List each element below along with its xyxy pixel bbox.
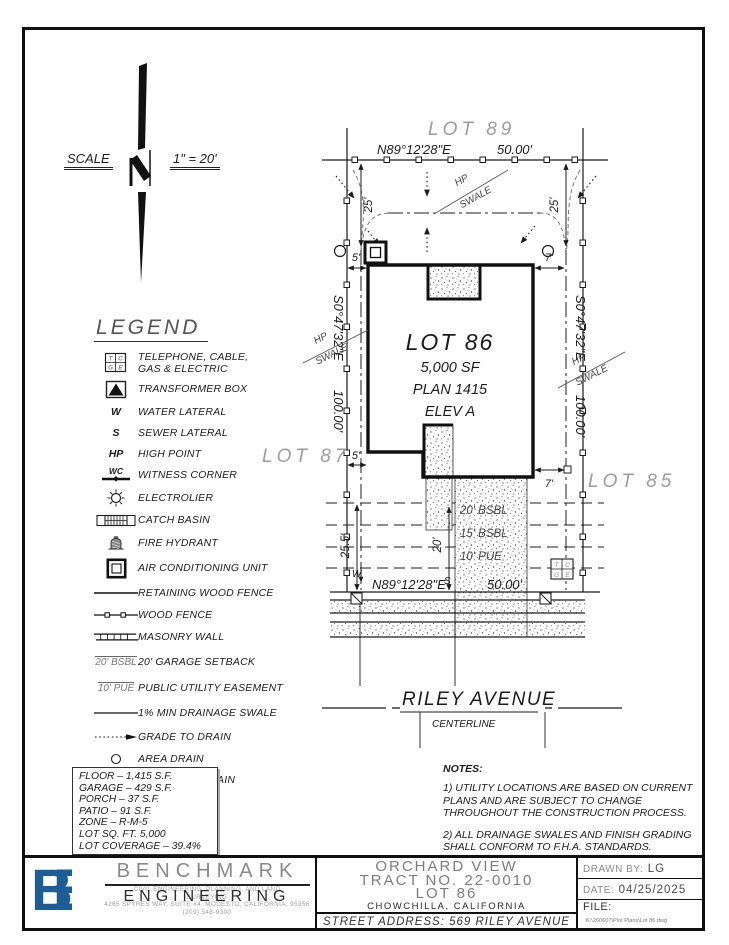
dim-side-left-bottom: 5' (352, 450, 361, 462)
hp-label: HP (312, 331, 330, 347)
bubble-up-drain-icon (351, 593, 362, 604)
hp-label: HP (453, 172, 471, 189)
note-item: 1) UTILITY LOCATIONS ARE BASED ON CURREN… (443, 782, 705, 820)
legend-title: LEGEND (94, 316, 208, 342)
svg-text:WC: WC (109, 466, 124, 476)
setback-label-20: 20' BSBL (459, 505, 508, 517)
legend-item: WOOD FENCE (94, 605, 302, 625)
area-drain-icon (94, 753, 138, 765)
company-logo: BE (31, 863, 97, 919)
pue-easement-icon: 10' PUE (94, 682, 138, 694)
legend-item: RETAINING WOOD FENCE (94, 582, 302, 604)
legend-item: FIRE HYDRANT (94, 531, 302, 554)
project-city: CHOWCHILLA, CALIFORNIA (317, 901, 576, 912)
legend-item-label: WITNESS CORNER (138, 469, 237, 481)
lot-elev-label: ELEV A (425, 404, 475, 420)
drawn-by-value: LG (648, 863, 665, 875)
street-address: STREET ADDRESS: 569 RILEY AVENUE (317, 912, 576, 929)
file-path: K:\260607\Plot Plans\Lot 86.dwg (583, 913, 702, 924)
legend-item: AREA DRAIN (94, 749, 302, 769)
stat-row: PATIO – 91 S.F. (79, 806, 213, 818)
stat-row: PORCH – 37 S.F. (79, 794, 213, 806)
water-lateral-icon: W (94, 406, 138, 418)
stat-row: ZONE – R-M-5 (79, 817, 213, 829)
rear-distance-label: 50.00' (497, 142, 533, 157)
svg-text:C: C (118, 356, 123, 363)
stat-row: LOT COVERAGE – 39.4% (79, 841, 213, 853)
company-name-overlay: ENGINEERING (101, 888, 313, 906)
stat-row: LOT SQ. FT. 5,000 (79, 829, 213, 841)
legend-item-label: 20' GARAGE SETBACK (138, 656, 255, 668)
legend-item: ELECTROLIER (94, 486, 302, 509)
drainage-swale-icon (94, 710, 138, 716)
date-value: 04/25/2025 (619, 884, 687, 896)
bsbl-setback-icon: 20' BSBL (94, 656, 138, 668)
legend-item-label: AIR CONDITIONING UNIT (138, 562, 268, 574)
lot-name-label: LOT 86 (406, 329, 495, 355)
high-point-icon: HP (94, 448, 138, 460)
walkway (426, 478, 452, 530)
legend-item: 10' PUE PUBLIC UTILITY EASEMENT (94, 675, 302, 700)
file-row: FILE: K:\260607\Plot Plans\Lot 86.dwg (578, 900, 702, 928)
rear-bearing-label: N89°12'28"E (377, 142, 451, 157)
legend-item-label: FIRE HYDRANT (138, 537, 218, 549)
adjacent-lot-north-label: LOT 89 (428, 119, 515, 140)
ac-unit-icon (94, 558, 138, 579)
dim-side-right-top: 7' (545, 252, 554, 264)
title-block: BE BENCHMARK CIVIL ENGINEERING, PLANNING… (22, 855, 705, 931)
project-block: ORCHARD VIEW TRACT NO. 22-0010 LOT 86 CH… (317, 858, 578, 928)
water-lateral-label: W (352, 569, 363, 580)
legend-item-label: SEWER LATERAL (138, 427, 228, 439)
area-drain-icon (335, 246, 346, 257)
svg-text:C: C (565, 562, 570, 569)
legend-item: CATCH BASIN (94, 510, 302, 530)
company-block: BE BENCHMARK CIVIL ENGINEERING, PLANNING… (25, 858, 317, 928)
bubble-up-drain-icon (540, 593, 551, 604)
dim-side-left-top: 5' (352, 252, 361, 264)
setback-label-15: 15' BSBL (460, 528, 508, 540)
svg-text:G: G (554, 572, 559, 579)
legend-item-label: WATER LATERAL (138, 406, 226, 418)
note-item: 2) ALL DRAINAGE SWALES AND FINISH GRADIN… (443, 829, 705, 854)
svg-text:E: E (118, 365, 123, 372)
front-distance-label: 50.00' (487, 577, 523, 592)
svg-text:E: E (565, 572, 570, 579)
project-lot: LOT 86 (317, 887, 576, 901)
area-summary-box: FLOOR – 1,415 S.F. GARAGE – 429 S.F. POR… (72, 767, 218, 855)
setback-label-pue: 10' PUE (460, 551, 502, 563)
wood-fence-icon (94, 611, 138, 619)
north-arrow-icon (130, 63, 151, 283)
electrolier-icon (94, 488, 138, 508)
dim-rear-right: 25' (549, 197, 561, 214)
legend-item-label: GRADE TO DRAIN (138, 731, 231, 743)
legend-item: WC WITNESS CORNER (94, 465, 302, 485)
dim-side-right-bottom: 7' (545, 478, 554, 490)
dim-driveway: 20' (432, 537, 444, 554)
legend-item-label: WOOD FENCE (138, 609, 212, 621)
legend-item: TRANSFORMER BOX (94, 377, 302, 401)
adjacent-lot-east-label: LOT 85 (588, 471, 675, 492)
swale-label: SWALE (458, 184, 494, 211)
transformer-box-icon (94, 380, 138, 399)
date-row: DATE: 04/25/2025 (578, 879, 702, 900)
legend-item: W WATER LATERAL (94, 402, 302, 422)
legend-item-label: ELECTROLIER (138, 492, 213, 504)
east-bearing-label: S0°47'32"E (573, 295, 588, 361)
drawn-by-row: DRAWN BY: LG (578, 858, 702, 879)
legend-item: GRADE TO DRAIN (94, 726, 302, 748)
legend-item-label: TELEPHONE, CABLE, GAS & ELECTRIC (138, 351, 248, 375)
ac-unit-icon (365, 242, 386, 263)
street-centerline-label: CENTERLINE (432, 719, 496, 730)
meta-block: DRAWN BY: LG DATE: 04/25/2025 FILE: K:\2… (578, 858, 702, 928)
company-phone: (209) 548-9300 (101, 909, 313, 917)
stat-row: GARAGE – 429 S.F. (79, 783, 213, 795)
legend-item-label: MASONRY WALL (138, 631, 224, 643)
swale-label: SWALE (574, 363, 610, 389)
dim-rear-left: 25' (363, 197, 375, 214)
tcge-box-icon: T C G E (94, 352, 138, 374)
fire-hydrant-icon (94, 535, 138, 551)
legend: LEGEND T C G E TELEPHONE, CABLE, GAS & E… (94, 316, 302, 791)
legend-item-label: RETAINING WOOD FENCE (138, 587, 274, 599)
masonry-wall-icon (94, 632, 138, 642)
legend-item: T C G E TELEPHONE, CABLE, GAS & ELECTRIC (94, 350, 302, 376)
legend-item: AIR CONDITIONING UNIT (94, 555, 302, 581)
legend-item-label: TRANSFORMER BOX (138, 383, 247, 395)
west-distance-label: 100.00' (331, 390, 346, 433)
notes: NOTES: 1) UTILITY LOCATIONS ARE BASED ON… (443, 763, 705, 863)
legend-item: HP HIGH POINT (94, 444, 302, 464)
stat-row: FLOOR – 1,415 S.F. (79, 771, 213, 783)
legend-item: 1% MIN DRAINAGE SWALE (94, 701, 302, 725)
lot-plan-label: PLAN 1415 (413, 382, 488, 398)
legend-item: S SEWER LATERAL (94, 423, 302, 443)
front-bearing-label: N89°12'28"E (372, 577, 446, 592)
street-name-label: RILEY AVENUE (402, 689, 556, 710)
legend-item-label: AREA DRAIN (138, 753, 204, 765)
witness-corner-icon: WC (94, 466, 138, 484)
lot-area-label: 5,000 SF (421, 360, 481, 376)
catch-basin-icon (94, 514, 138, 527)
notes-title: NOTES: (443, 763, 705, 775)
tcge-box-icon: T C G E (551, 559, 573, 579)
legend-item-label: PUBLIC UTILITY EASEMENT (138, 682, 283, 694)
legend-item-label: HIGH POINT (138, 448, 201, 460)
retaining-wood-fence-icon (94, 590, 138, 596)
legend-item: MASONRY WALL (94, 626, 302, 648)
east-distance-label: 100.00' (573, 395, 588, 438)
dim-front-left: 25.5' (340, 533, 352, 559)
grade-to-drain-icon (94, 733, 138, 741)
svg-text:G: G (108, 365, 113, 372)
svg-text:T: T (109, 356, 114, 363)
company-name: BENCHMARK (105, 860, 310, 886)
legend-item-label: 1% MIN DRAINAGE SWALE (138, 707, 277, 719)
legend-item: 20' BSBL 20' GARAGE SETBACK (94, 649, 302, 674)
sewer-lateral-label: S (444, 576, 451, 587)
legend-item-label: CATCH BASIN (138, 514, 210, 526)
sewer-lateral-icon: S (94, 427, 138, 439)
